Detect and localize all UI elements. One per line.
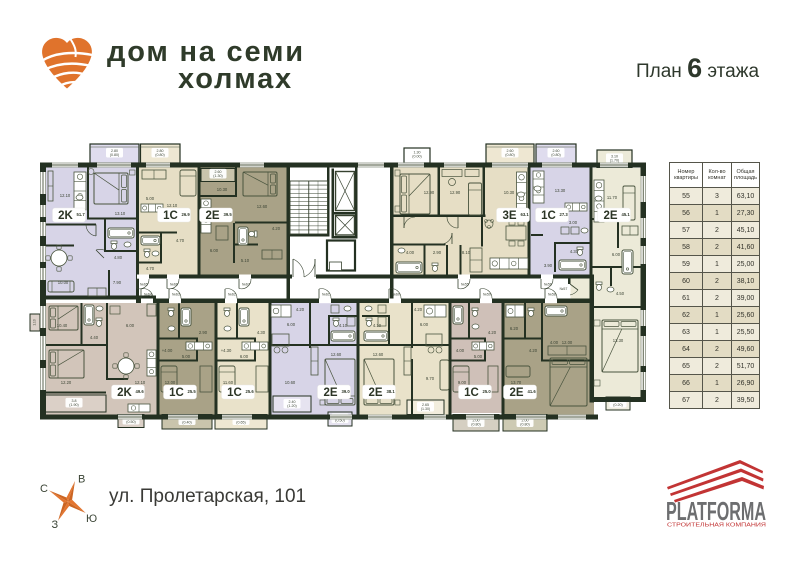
svg-text:2E: 2E [323, 387, 337, 399]
svg-text:13.30: 13.30 [555, 188, 566, 193]
svg-text:(0.80): (0.80) [551, 153, 560, 157]
svg-text:4.20: 4.20 [529, 348, 538, 353]
svg-text:12.60: 12.60 [331, 352, 342, 357]
svg-text:(1.70): (1.70) [610, 158, 619, 162]
svg-text:4.30: 4.30 [257, 330, 266, 335]
svg-text:№64: №64 [144, 293, 152, 297]
svg-text:49.6: 49.6 [136, 389, 145, 394]
svg-text:(1.30): (1.30) [213, 174, 222, 178]
svg-text:4.00: 4.00 [406, 250, 415, 255]
svg-text:6.00: 6.00 [240, 354, 249, 359]
svg-text:7.90: 7.90 [113, 280, 122, 285]
svg-text:(1.30): (1.30) [421, 407, 430, 411]
svg-text:12.60: 12.60 [257, 204, 268, 209]
svg-text:2E: 2E [368, 387, 382, 399]
svg-text:10.30: 10.30 [217, 187, 228, 192]
svg-text:№55: №55 [461, 283, 469, 287]
svg-text:№57: №57 [560, 287, 568, 291]
svg-text:4.20: 4.20 [414, 307, 423, 312]
svg-text:6.00: 6.00 [287, 322, 296, 327]
svg-text:1C: 1C [227, 387, 242, 399]
svg-text:4.80: 4.80 [114, 255, 123, 260]
svg-text:2.90: 2.90 [199, 330, 208, 335]
svg-text:10.30: 10.30 [504, 190, 515, 195]
svg-text:4.40: 4.40 [90, 335, 99, 340]
svg-text:№63: №63 [172, 293, 180, 297]
svg-text:10.60: 10.60 [285, 380, 296, 385]
svg-text:1C: 1C [169, 387, 184, 399]
svg-text:№65: №65 [140, 283, 148, 287]
svg-text:№56: №56 [544, 283, 552, 287]
svg-text:11.70: 11.70 [607, 195, 618, 200]
svg-text:(0.20): (0.20) [613, 403, 622, 407]
svg-text:(0.80): (0.80) [110, 153, 119, 157]
svg-text:№61: №61 [322, 293, 330, 297]
svg-text:(0.80): (0.80) [471, 422, 480, 426]
svg-text:(0.65): (0.65) [236, 420, 245, 424]
svg-text:№58: №58 [548, 293, 556, 297]
svg-text:3.00: 3.00 [569, 220, 578, 225]
svg-text:4.70: 4.70 [176, 238, 185, 243]
svg-text:4.00: 4.00 [550, 340, 559, 345]
svg-text:13.70: 13.70 [511, 380, 522, 385]
svg-text:9.00: 9.00 [458, 380, 467, 385]
svg-text:2K: 2K [117, 387, 132, 399]
svg-text:39.5: 39.5 [224, 212, 233, 217]
svg-text:12.10: 12.10 [135, 380, 146, 385]
svg-text:5.00: 5.00 [182, 354, 191, 359]
svg-text:12.20: 12.20 [61, 380, 72, 385]
svg-text:4.10: 4.10 [339, 323, 348, 328]
svg-text:+4.00: +4.00 [162, 348, 173, 353]
svg-text:12.00: 12.00 [165, 380, 176, 385]
svg-text:(1.20): (1.20) [287, 404, 296, 408]
svg-text:25.0: 25.0 [483, 389, 492, 394]
svg-text:№60: №60 [392, 293, 400, 297]
svg-text:4.10: 4.10 [373, 323, 382, 328]
svg-text:12.90: 12.90 [450, 190, 461, 195]
svg-text:6.00: 6.00 [420, 322, 429, 327]
svg-text:1C: 1C [464, 387, 479, 399]
svg-text:6.20: 6.20 [510, 326, 519, 331]
svg-text:№66: №66 [170, 283, 178, 287]
svg-text:2E: 2E [603, 210, 617, 222]
svg-text:(1.90): (1.90) [69, 403, 78, 407]
svg-text:8.10: 8.10 [462, 250, 471, 255]
svg-text:38.1: 38.1 [387, 389, 396, 394]
svg-text:10.00: 10.00 [58, 280, 69, 285]
svg-text:41.6: 41.6 [528, 389, 537, 394]
svg-text:6.00: 6.00 [210, 248, 219, 253]
svg-text:(0.50): (0.50) [126, 420, 135, 424]
svg-text:1C: 1C [541, 210, 556, 222]
svg-text:4.50: 4.50 [616, 291, 625, 296]
svg-text:3E: 3E [502, 210, 516, 222]
svg-text:10.40: 10.40 [57, 323, 68, 328]
svg-text:26.9: 26.9 [182, 212, 191, 217]
svg-text:№67: №67 [242, 283, 250, 287]
svg-text:(0.80): (0.80) [520, 422, 529, 426]
svg-text:4.20: 4.20 [488, 330, 497, 335]
svg-text:11.60: 11.60 [223, 380, 234, 385]
svg-text:12.90: 12.90 [424, 190, 435, 195]
svg-text:12.00: 12.00 [562, 340, 573, 345]
svg-text:12.10: 12.10 [167, 203, 178, 208]
svg-text:(0.40): (0.40) [182, 420, 191, 424]
svg-text:2E: 2E [509, 387, 523, 399]
svg-text:№62: №62 [228, 293, 236, 297]
svg-text:4.00: 4.00 [456, 348, 465, 353]
svg-text:2E: 2E [205, 210, 219, 222]
svg-text:63.1: 63.1 [521, 212, 530, 217]
svg-text:5.00: 5.00 [146, 196, 155, 201]
svg-text:13.10: 13.10 [115, 211, 126, 216]
svg-text:45.1: 45.1 [622, 212, 631, 217]
svg-text:51.7: 51.7 [77, 212, 86, 217]
svg-text:5.00: 5.00 [474, 354, 483, 359]
svg-text:4.30: 4.30 [570, 249, 579, 254]
svg-text:5.10: 5.10 [241, 258, 250, 263]
svg-text:4.20: 4.20 [272, 226, 281, 231]
svg-text:9.70: 9.70 [426, 376, 435, 381]
svg-text:2K: 2K [58, 210, 73, 222]
svg-text:+4.30: +4.30 [221, 348, 232, 353]
svg-text:13.30: 13.30 [613, 338, 624, 343]
svg-text:4.20: 4.20 [296, 307, 305, 312]
svg-text:2.90: 2.90 [433, 250, 442, 255]
svg-text:27.3: 27.3 [560, 212, 569, 217]
svg-text:3.90: 3.90 [544, 263, 553, 268]
svg-text:25.5: 25.5 [188, 389, 197, 394]
svg-text:(0.80): (0.80) [155, 153, 164, 157]
svg-text:25.6: 25.6 [246, 389, 255, 394]
svg-text:6.00: 6.00 [612, 252, 621, 257]
svg-text:1C: 1C [163, 210, 178, 222]
svg-text:(0.00): (0.00) [412, 154, 421, 158]
svg-text:6.00: 6.00 [126, 323, 135, 328]
svg-text:12.10: 12.10 [60, 193, 71, 198]
svg-text:1.10: 1.10 [33, 319, 37, 325]
svg-text:39.0: 39.0 [342, 389, 351, 394]
svg-text:12.60: 12.60 [373, 352, 384, 357]
svg-text:4.70: 4.70 [146, 266, 155, 271]
svg-text:№59: №59 [483, 293, 491, 297]
svg-text:(0.80): (0.80) [505, 153, 514, 157]
